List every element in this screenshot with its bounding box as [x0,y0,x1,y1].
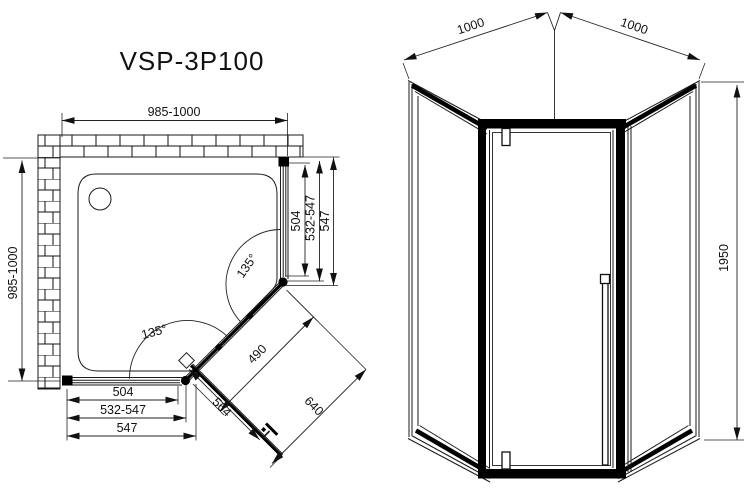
dim-door-564: 564 [189,369,260,440]
svg-text:547: 547 [117,421,138,435]
svg-text:532-547: 532-547 [304,195,318,241]
door-frame-top [484,119,626,129]
dim-plan-bottom-side: 504 532-547 547 [67,384,196,441]
door-handle-bar [603,283,609,465]
front-panel-left [408,81,490,483]
svg-text:985-1000: 985-1000 [148,105,201,119]
plan-view: 135° 135° 985-1000 985-1000 504 532-547 … [3,105,366,468]
plan-panel-bottom [62,376,190,386]
shower-enclosure-drawing: VSP-3P100 [0,0,752,496]
svg-text:532-547: 532-547 [100,403,146,417]
door-hinge-top [502,129,510,146]
door-glass [493,133,611,466]
door-frame-bottom [484,469,626,479]
angle-label-bottom: 135° [140,322,169,342]
svg-text:564: 564 [210,395,235,420]
door-hinge-bottom [502,452,510,469]
svg-text:547: 547 [318,211,332,232]
wall-left [38,135,60,389]
dim-apex-v [548,13,561,31]
dim-entry-640: 640 [270,292,366,468]
wall-top [40,135,303,157]
svg-text:1950: 1950 [717,244,731,272]
front-panel-right [618,81,700,483]
dim-front-height: 1950 [701,82,744,440]
dim-front-side-left: 1000 [403,13,548,80]
door-post-left [478,119,486,479]
drain-circle [89,188,111,210]
drawing-title: VSP-3P100 [120,46,265,76]
angle-label-top: 135° [234,251,260,280]
door-handle-cap [601,275,610,284]
plan-door-open [179,353,283,456]
svg-text:640: 640 [302,394,327,419]
svg-text:504: 504 [113,385,134,399]
front-view: 1000 1000 1950 [403,13,744,483]
svg-text:985-1000: 985-1000 [6,247,20,300]
front-door-section [478,119,631,479]
door-post-right [616,119,625,479]
dim-front-side-right: 1000 [561,13,706,80]
door-handle-plan [263,431,269,437]
plan-door-closed [186,283,283,381]
wall-bracket-top [279,157,290,167]
svg-text:490: 490 [245,342,270,367]
dim-plan-right-side: 504 532-547 547 [286,157,340,286]
plan-panel-right [278,157,289,287]
wall-bracket-left [62,376,73,386]
technical-drawing-page: VSP-3P100 [0,0,752,496]
svg-text:504: 504 [289,211,303,232]
